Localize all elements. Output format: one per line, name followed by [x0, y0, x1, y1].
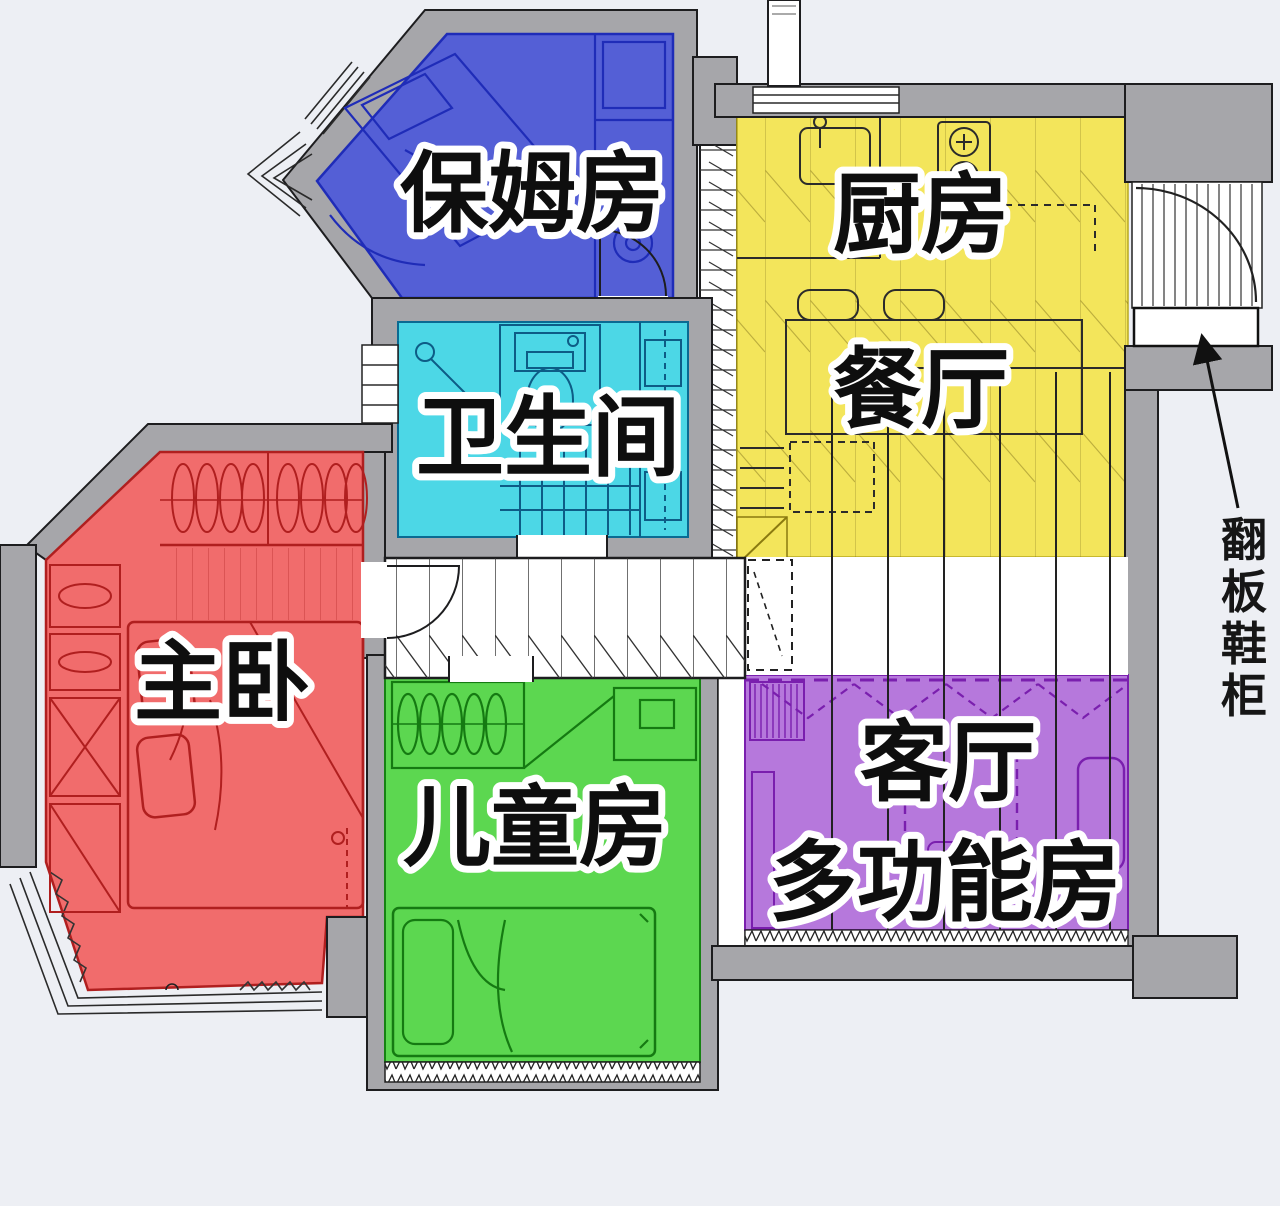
- bottom-wall: [712, 946, 1158, 980]
- corner-wall: [1133, 936, 1237, 998]
- bathroom-window: [362, 345, 398, 423]
- floorplan: 翻 板 鞋 柜 保姆房 厨房 餐厅 卫生间 主卧 儿童房 客厅 多功能房: [0, 0, 1280, 1206]
- label-nanny-room: 保姆房: [400, 144, 664, 243]
- annotation-char: 板: [1221, 566, 1267, 618]
- label-multi-function: 多功能房: [769, 833, 1121, 932]
- annotation-char: 鞋: [1221, 618, 1267, 670]
- shaft: [718, 655, 745, 946]
- label-bathroom: 卫生间: [416, 388, 680, 487]
- master-door-opening: [361, 562, 387, 638]
- label-master-bedroom: 主卧: [134, 633, 310, 732]
- label-dining-room: 餐厅: [833, 340, 1009, 439]
- annotation-char: 翻: [1221, 514, 1267, 566]
- shoe-cabinet: [1134, 308, 1258, 346]
- right-wall: [1125, 390, 1158, 946]
- label-kitchen: 厨房: [833, 165, 1009, 264]
- corridor-main: [361, 558, 745, 682]
- annotation-char: 柜: [1221, 670, 1267, 722]
- vent-shaft: [768, 0, 800, 86]
- label-living-room: 客厅: [860, 713, 1036, 812]
- kids-door-opening: [449, 656, 533, 682]
- label-kids-room: 儿童房: [403, 778, 667, 877]
- bathroom-door-opening: [517, 535, 607, 560]
- kitchen-window: [753, 87, 899, 113]
